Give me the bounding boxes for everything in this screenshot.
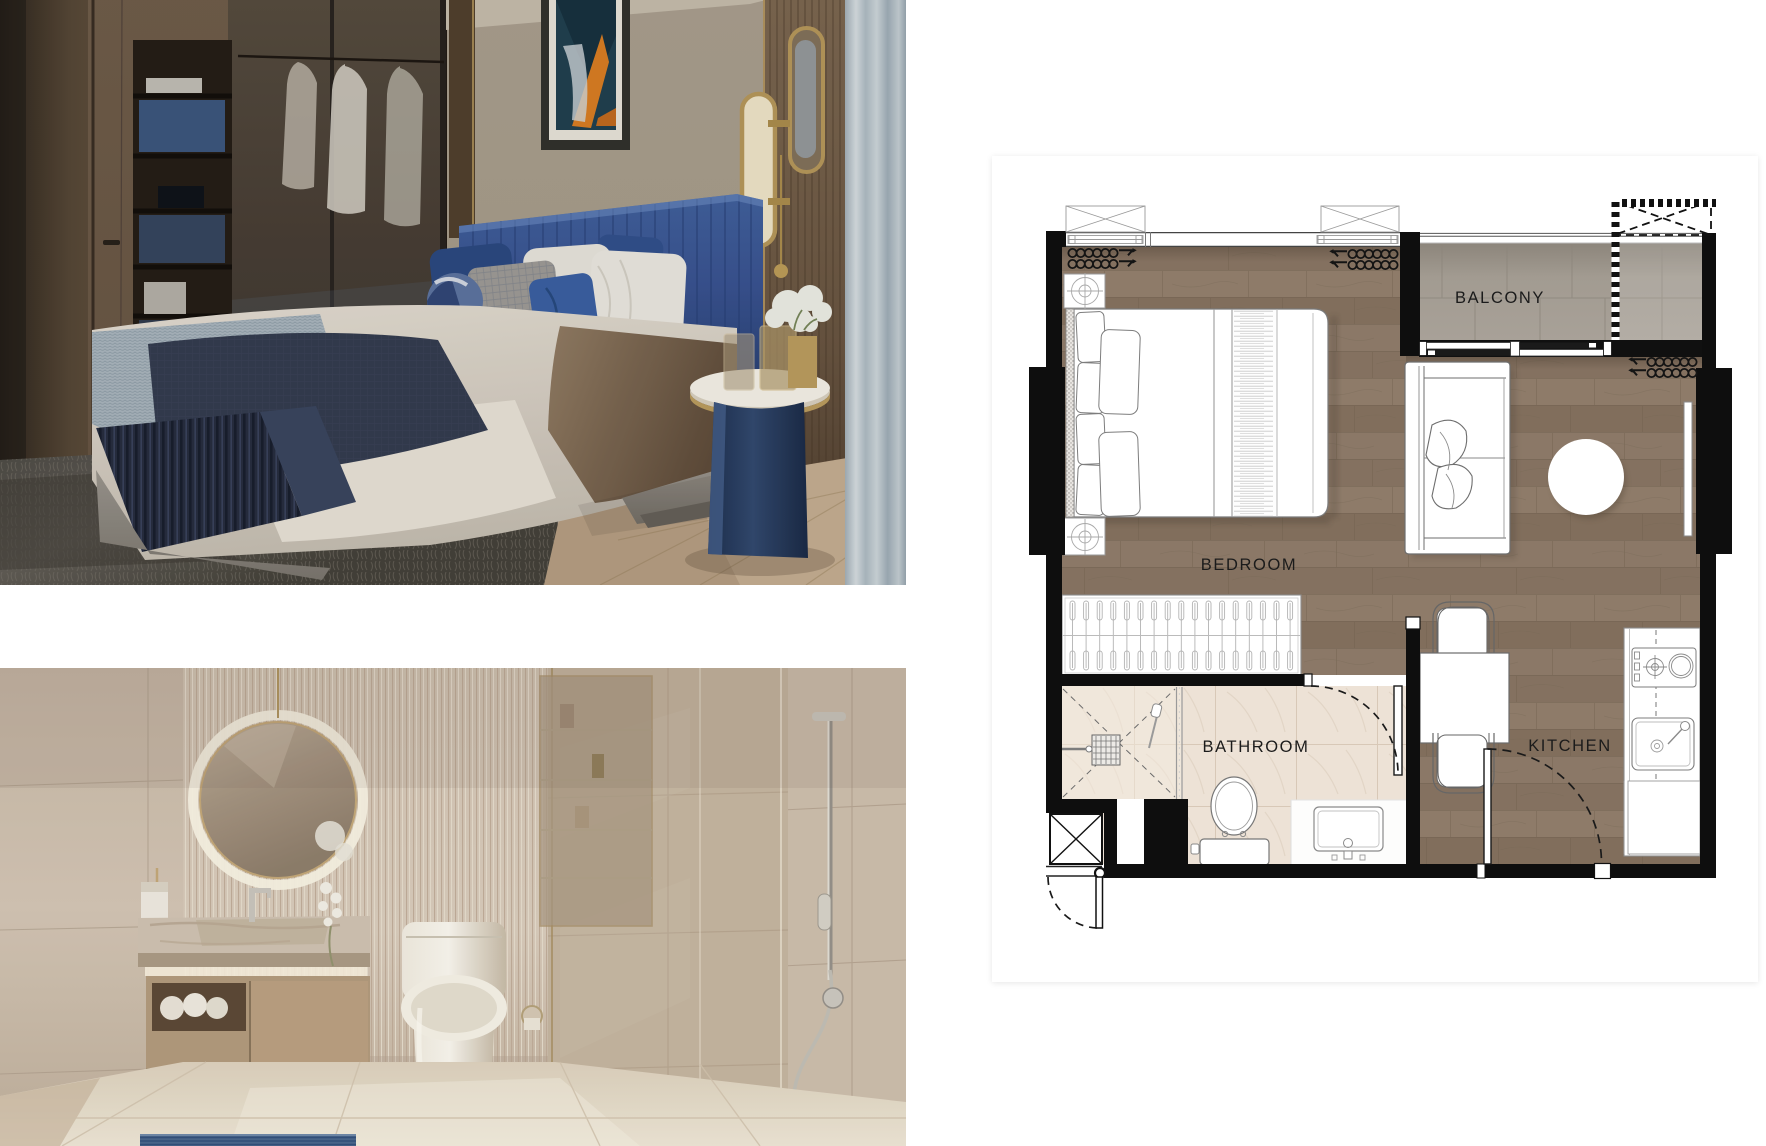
svg-text:KITCHEN: KITCHEN — [1528, 737, 1612, 755]
svg-text:BEDROOM: BEDROOM — [1201, 556, 1297, 574]
svg-text:BALCONY: BALCONY — [1455, 289, 1545, 307]
svg-text:BATHROOM: BATHROOM — [1203, 738, 1310, 756]
